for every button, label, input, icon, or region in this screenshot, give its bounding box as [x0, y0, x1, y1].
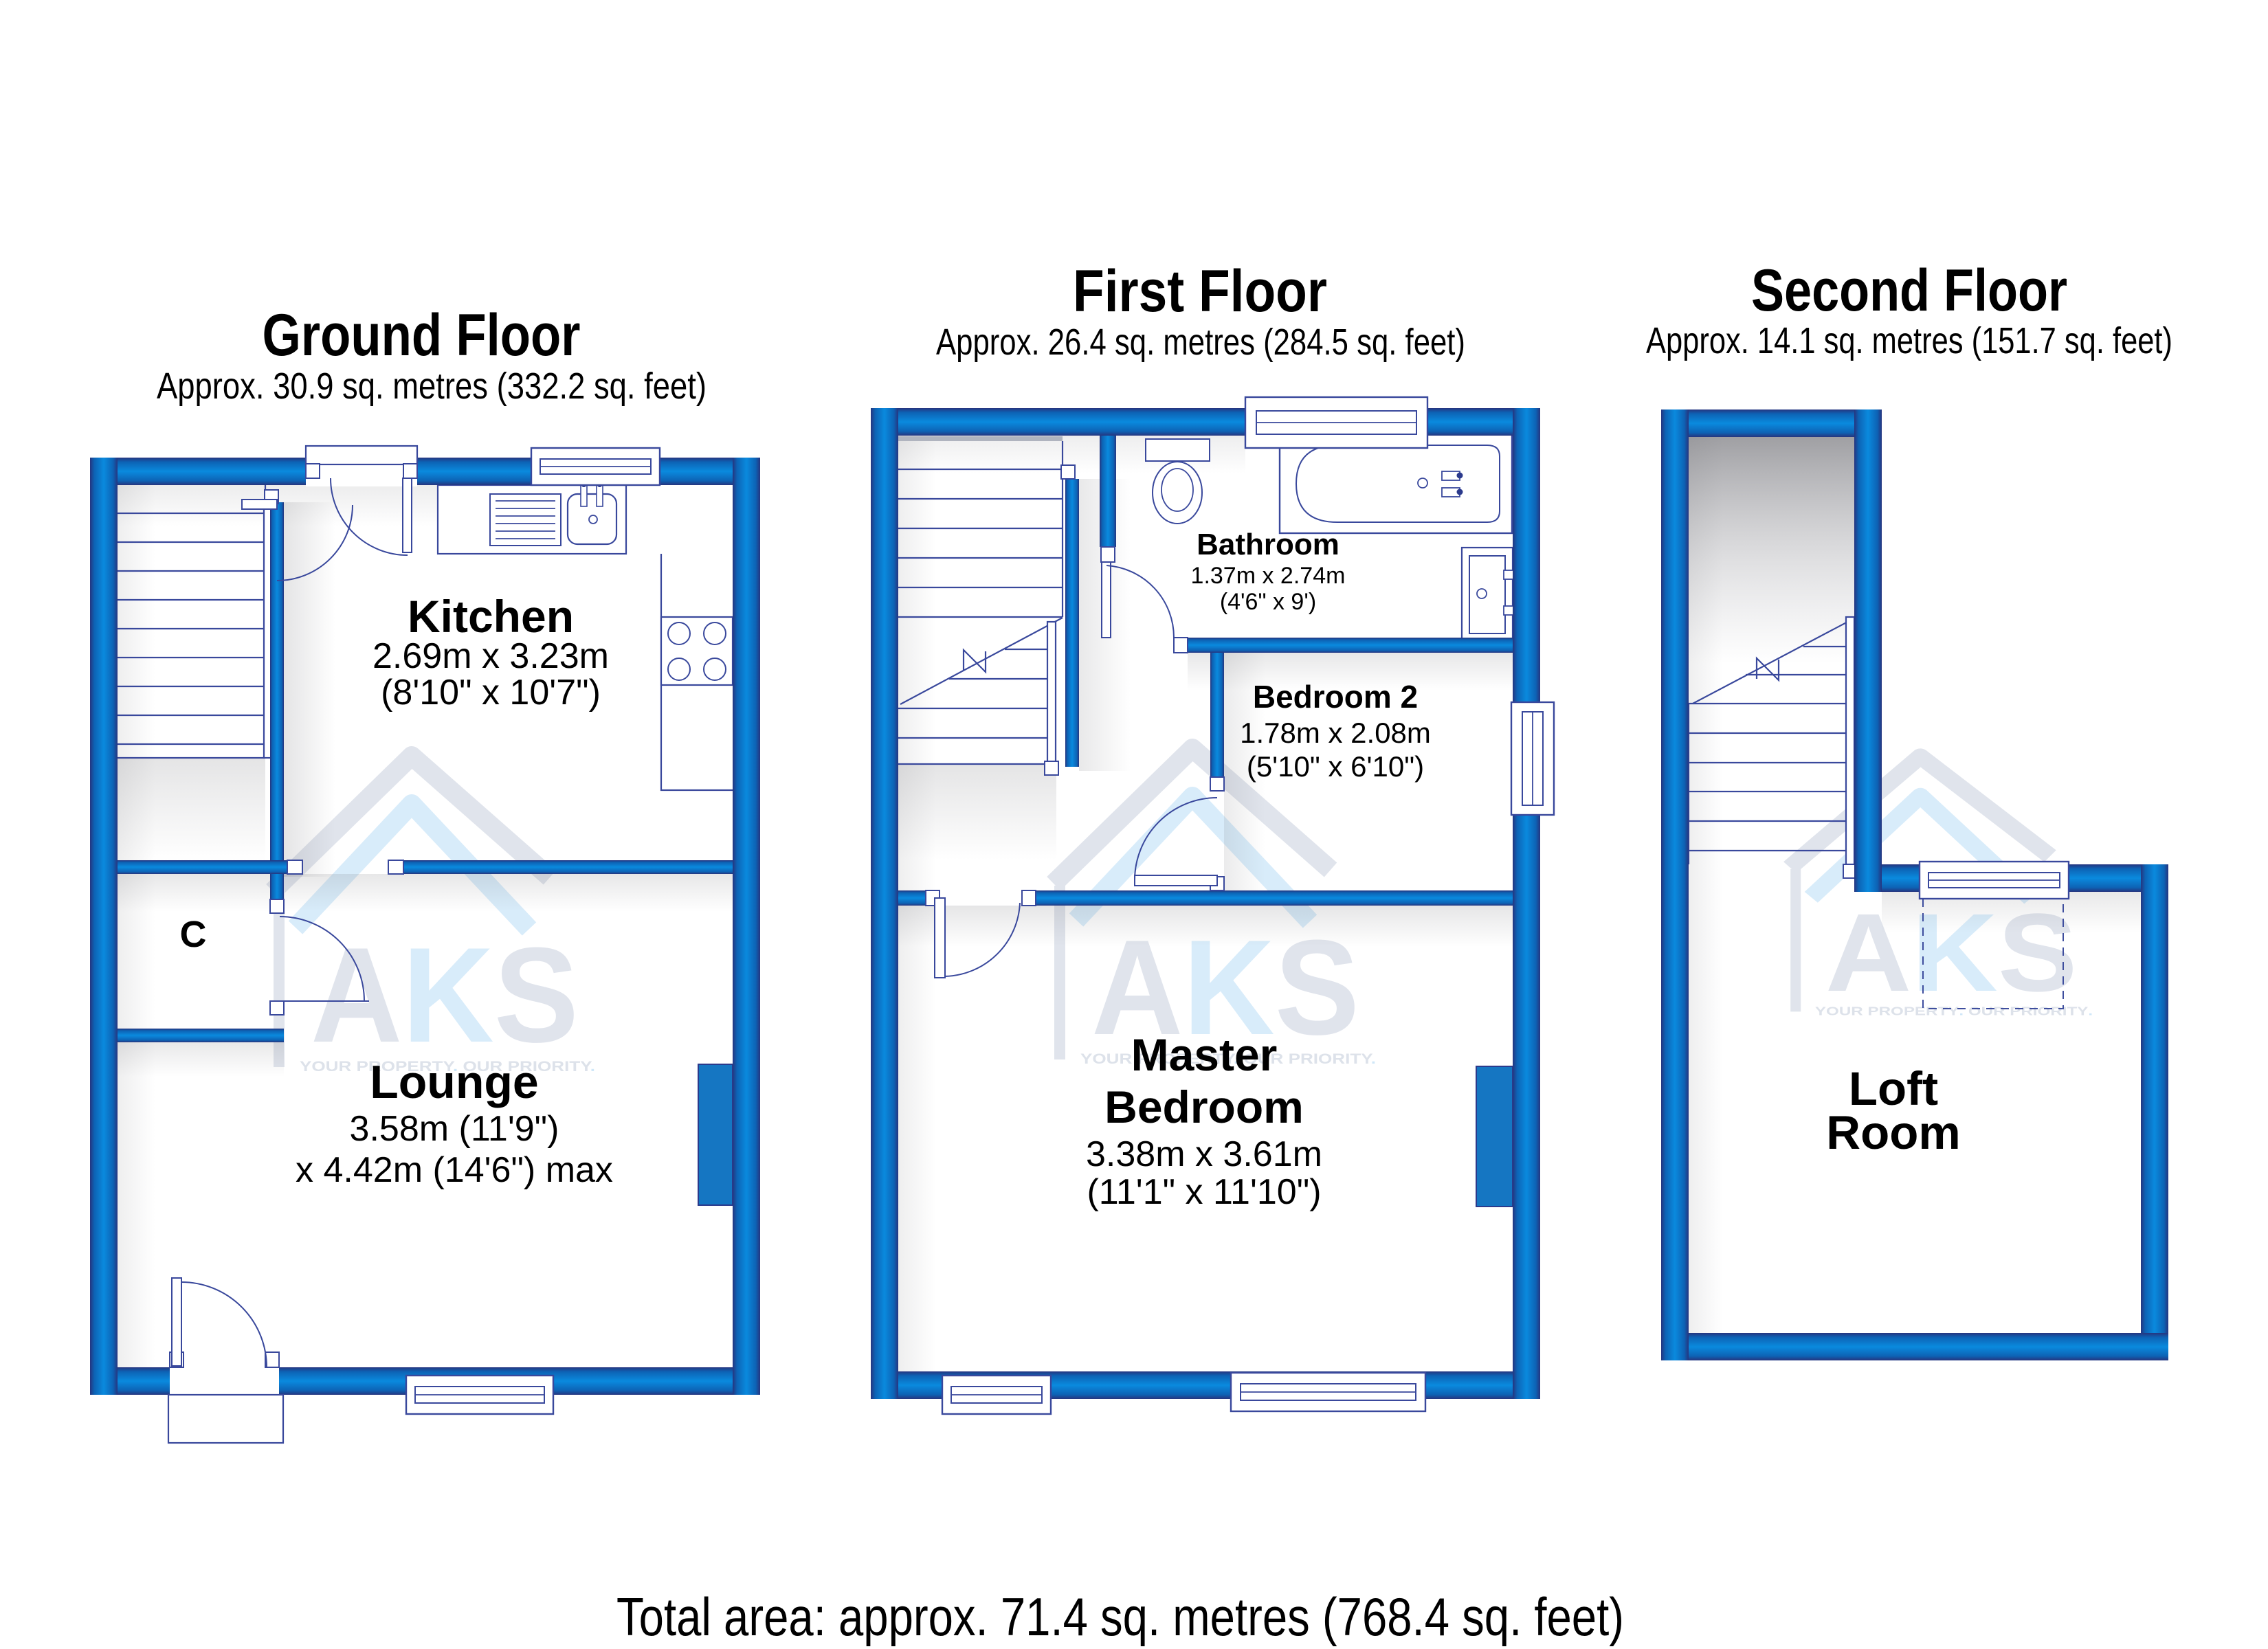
svg-text:3.38m x 3.61m: 3.38m x 3.61m: [1086, 1134, 1322, 1174]
svg-text:2.69m x 3.23m: 2.69m x 3.23m: [373, 636, 609, 676]
svg-text:First Floor: First Floor: [1073, 258, 1327, 324]
svg-text:x 4.42m (14'6") max: x 4.42m (14'6") max: [296, 1150, 613, 1190]
svg-text:1.78m x 2.08m: 1.78m x 2.08m: [1240, 717, 1431, 749]
svg-text:(8'10" x 10'7"): (8'10" x 10'7"): [381, 673, 601, 713]
svg-text:(5'10" x 6'10"): (5'10" x 6'10"): [1247, 750, 1424, 783]
svg-text:Second Floor: Second Floor: [1751, 258, 2067, 324]
svg-text:Approx. 14.1 sq. metres (151.7: Approx. 14.1 sq. metres (151.7 sq. feet): [1646, 320, 2172, 361]
svg-text:Lounge: Lounge: [370, 1056, 539, 1108]
svg-text:Master: Master: [1131, 1029, 1278, 1080]
svg-text:(11'1" x 11'10"): (11'1" x 11'10"): [1087, 1172, 1321, 1212]
svg-text:Approx. 26.4 sq. metres (284.5: Approx. 26.4 sq. metres (284.5 sq. feet): [936, 322, 1465, 363]
svg-text:Room: Room: [1826, 1106, 1960, 1159]
svg-text:C: C: [180, 914, 207, 955]
svg-text:Approx. 30.9 sq. metres (332.2: Approx. 30.9 sq. metres (332.2 sq. feet): [157, 366, 707, 407]
svg-text:Total area: approx. 71.4 sq. m: Total area: approx. 71.4 sq. metres (768…: [616, 1586, 1624, 1647]
svg-text:3.58m (11'9"): 3.58m (11'9"): [350, 1109, 559, 1149]
svg-text:Ground Floor: Ground Floor: [263, 302, 581, 368]
svg-text:(4'6" x 9'): (4'6" x 9'): [1220, 589, 1316, 615]
svg-text:Kitchen: Kitchen: [408, 591, 574, 642]
svg-text:Bedroom 2: Bedroom 2: [1253, 679, 1418, 715]
svg-text:Bathroom: Bathroom: [1197, 528, 1339, 561]
svg-text:1.37m x 2.74m: 1.37m x 2.74m: [1191, 563, 1346, 589]
svg-text:Bedroom: Bedroom: [1104, 1081, 1304, 1132]
